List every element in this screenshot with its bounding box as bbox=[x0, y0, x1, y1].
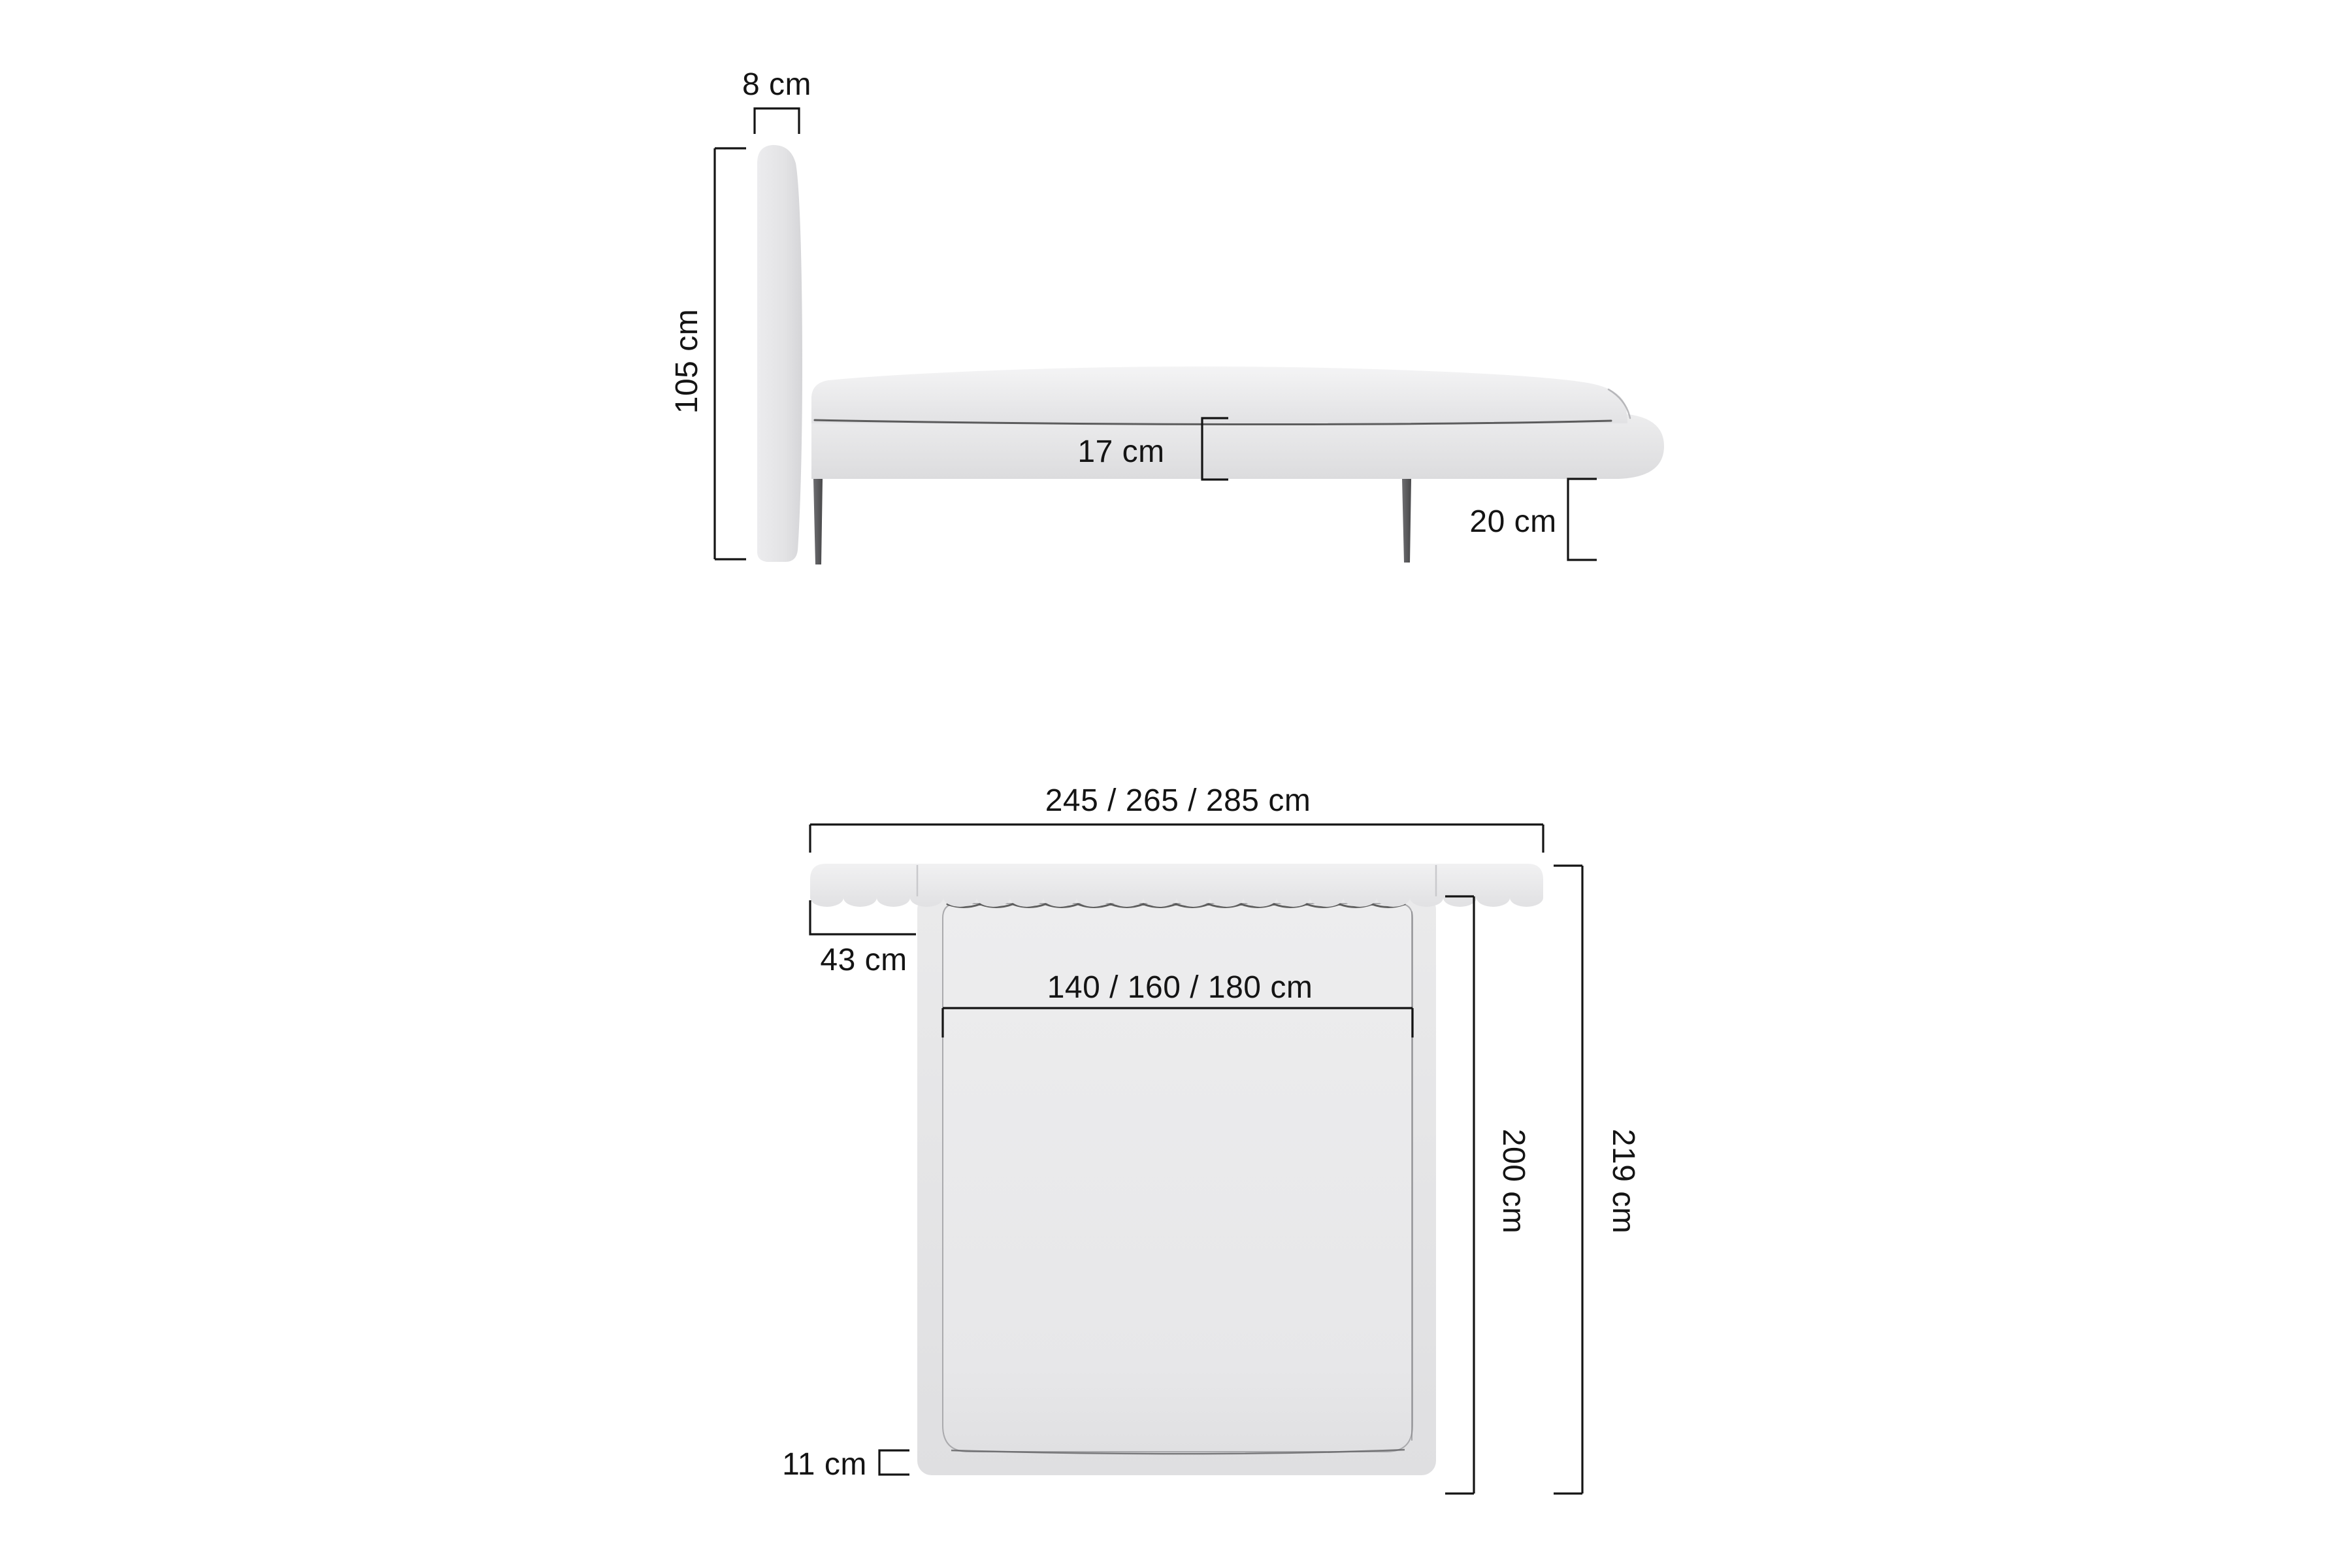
side-front-leg bbox=[813, 479, 823, 564]
dim-frame-border-label: 11 cm bbox=[782, 1447, 867, 1482]
dim-headboard-thickness-bracket bbox=[755, 108, 799, 134]
side-headboard bbox=[757, 145, 802, 562]
dim-leg-height-label: 20 cm bbox=[1469, 504, 1556, 539]
dim-headboard-height-label: 105 cm bbox=[670, 309, 704, 414]
dimension-diagram: 8 cm 105 cm 17 cm 20 cm 245 / 265 / 285 … bbox=[0, 0, 2352, 1568]
dim-mattress-length-label: 200 cm bbox=[1496, 1129, 1531, 1233]
dim-headboard-height-line bbox=[715, 148, 746, 559]
dim-overhang-label: 43 cm bbox=[820, 943, 907, 977]
dim-leg-height-bracket bbox=[1568, 479, 1597, 560]
dim-total-width-line bbox=[810, 825, 1543, 853]
dim-frame-border-bracket bbox=[879, 1450, 909, 1475]
dim-total-length-line bbox=[1554, 866, 1582, 1494]
dim-mattress-width-label: 140 / 160 / 180 cm bbox=[1047, 970, 1313, 1005]
top-view: 245 / 265 / 285 cm 43 cm 140 / 160 / 180… bbox=[782, 783, 1641, 1494]
side-view: 8 cm 105 cm 17 cm 20 cm bbox=[670, 67, 1664, 564]
bed-dimensions-svg: 8 cm 105 cm 17 cm 20 cm 245 / 265 / 285 … bbox=[0, 0, 2352, 1568]
dim-total-length-label: 219 cm bbox=[1606, 1129, 1641, 1233]
side-mattress bbox=[811, 367, 1627, 423]
dim-mattress-length-line bbox=[1445, 896, 1474, 1494]
dim-headboard-thickness-label: 8 cm bbox=[742, 67, 811, 102]
dim-frame-height-label: 17 cm bbox=[1077, 434, 1164, 469]
dim-total-width-label: 245 / 265 / 285 cm bbox=[1045, 783, 1311, 818]
side-rear-leg bbox=[1402, 479, 1411, 563]
